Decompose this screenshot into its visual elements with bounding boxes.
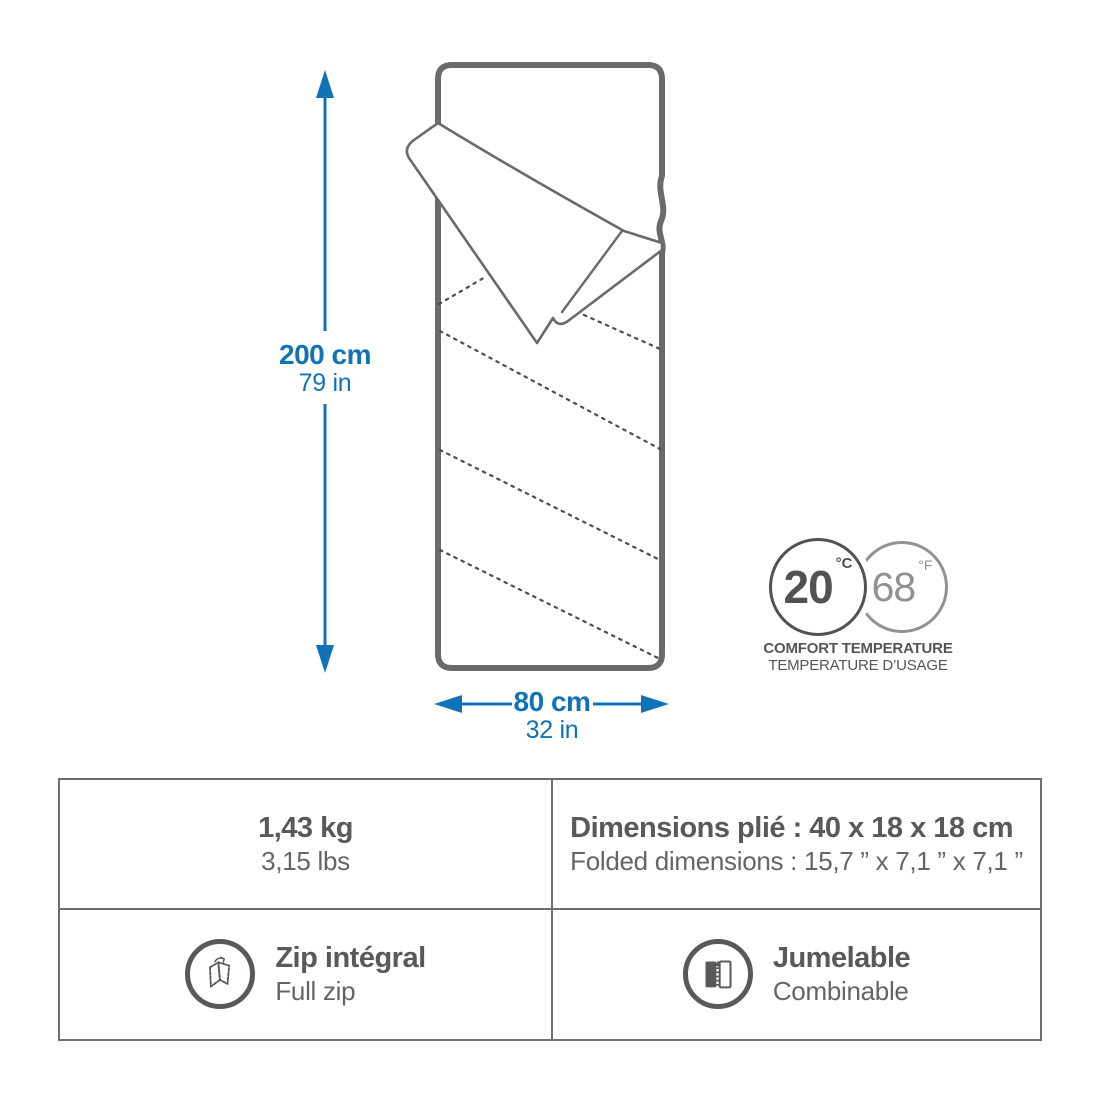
pairable-cell: Jumelable Combinable <box>553 910 1040 1040</box>
weight-cell: 1,43 kg 3,15 lbs <box>60 780 553 910</box>
temperature-caption-en: COMFORT TEMPERATURE <box>733 641 983 657</box>
unfolded-blanket-icon <box>185 939 255 1009</box>
weight-imperial: 3,15 lbs <box>258 846 353 877</box>
pairable-fr: Jumelable <box>773 941 910 976</box>
product-spec-infographic: { "dimensions": { "height_primary": "200… <box>0 0 1100 1100</box>
full-zip-cell: Zip intégral Full zip <box>60 910 553 1040</box>
folded-dimensions-en: Folded dimensions : 15,7 ” x 7,1 ” x 7,1… <box>570 846 1023 877</box>
width-dimension-label: 80 cm 32 in <box>472 687 632 744</box>
temperature-fahrenheit-circle: 68 °F <box>856 541 948 633</box>
folded-dimensions-fr: Dimensions plié : 40 x 18 x 18 cm <box>570 811 1023 846</box>
temperature-celsius-unit: °C <box>836 555 853 572</box>
pairable-en: Combinable <box>773 976 910 1007</box>
width-value-imperial: 32 in <box>526 717 579 744</box>
height-dimension-label: 200 cm 79 in <box>245 340 405 397</box>
height-value-imperial: 79 in <box>299 370 352 397</box>
folded-dimensions-cell: Dimensions plié : 40 x 18 x 18 cm Folded… <box>553 780 1040 910</box>
temperature-celsius-value: 20 <box>783 560 832 614</box>
height-value: 200 cm <box>279 340 371 370</box>
width-value: 80 cm <box>514 687 591 717</box>
temperature-fahrenheit-unit: °F <box>918 557 932 573</box>
spec-table: 1,43 kg 3,15 lbs Dimensions plié : 40 x … <box>58 778 1042 1041</box>
full-zip-en: Full zip <box>275 976 425 1007</box>
full-zip-fr: Zip intégral <box>275 941 425 976</box>
weight-metric: 1,43 kg <box>258 811 353 846</box>
temperature-caption-fr: TEMPERATURE D’USAGE <box>733 657 983 674</box>
temperature-fahrenheit-value: 68 <box>872 564 916 611</box>
temperature-caption: COMFORT TEMPERATURE TEMPERATURE D’USAGE <box>733 641 983 674</box>
temperature-celsius-circle: 20 °C <box>769 538 867 636</box>
zipper-icon <box>683 939 753 1009</box>
